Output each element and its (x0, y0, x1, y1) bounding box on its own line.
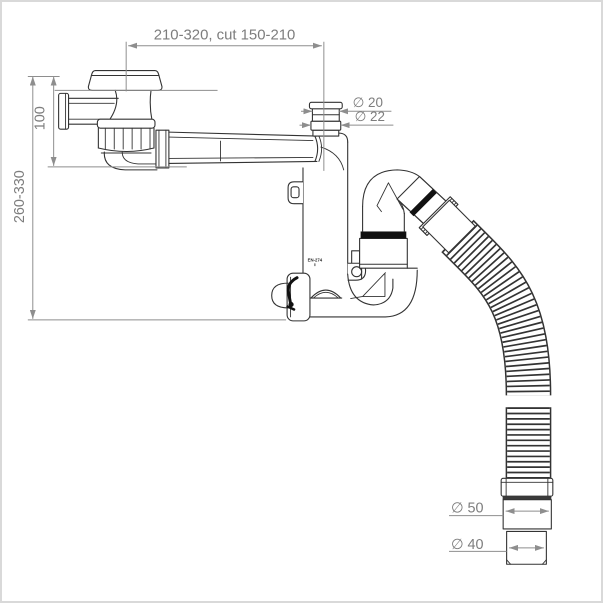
corrugated-hose-upper (457, 236, 528, 395)
nozzle-outer-dia-label: ∅ 20 (353, 95, 383, 110)
top-span-dimension-label: 210-320, cut 150-210 (154, 28, 296, 44)
outlet-adapter (501, 478, 553, 564)
overall-height-dimension-label: 260-330 (12, 170, 28, 223)
telescopic-horizontal-pipe (156, 130, 322, 168)
compression-seal-ring (361, 231, 407, 238)
strainer-lock-nut (97, 119, 155, 153)
technical-drawing-page: EN-274 (0, 0, 603, 603)
dishwasher-nozzle (309, 102, 342, 136)
cleanout-cap (272, 273, 310, 321)
upper-height-dimension-label: 100 (33, 106, 49, 130)
outlet-upper-dia-label: ∅ 50 (451, 501, 484, 517)
dimension-annotations: 210-320, cut 150-210 100 260-330 ∅ 20 ∅ … (12, 28, 549, 553)
standard-marking-label: EN-274 (308, 257, 323, 262)
wall-bracket (288, 182, 303, 204)
outlet-dia50-section (503, 500, 551, 529)
siphon-technical-drawing: EN-274 (2, 2, 601, 601)
riser-and-collar (360, 170, 420, 268)
nozzle-inner-dia-label: ∅ 22 (355, 109, 385, 124)
sink-strainer-assembly (59, 71, 162, 170)
outlet-lower-dia-label: ∅ 40 (451, 537, 484, 553)
